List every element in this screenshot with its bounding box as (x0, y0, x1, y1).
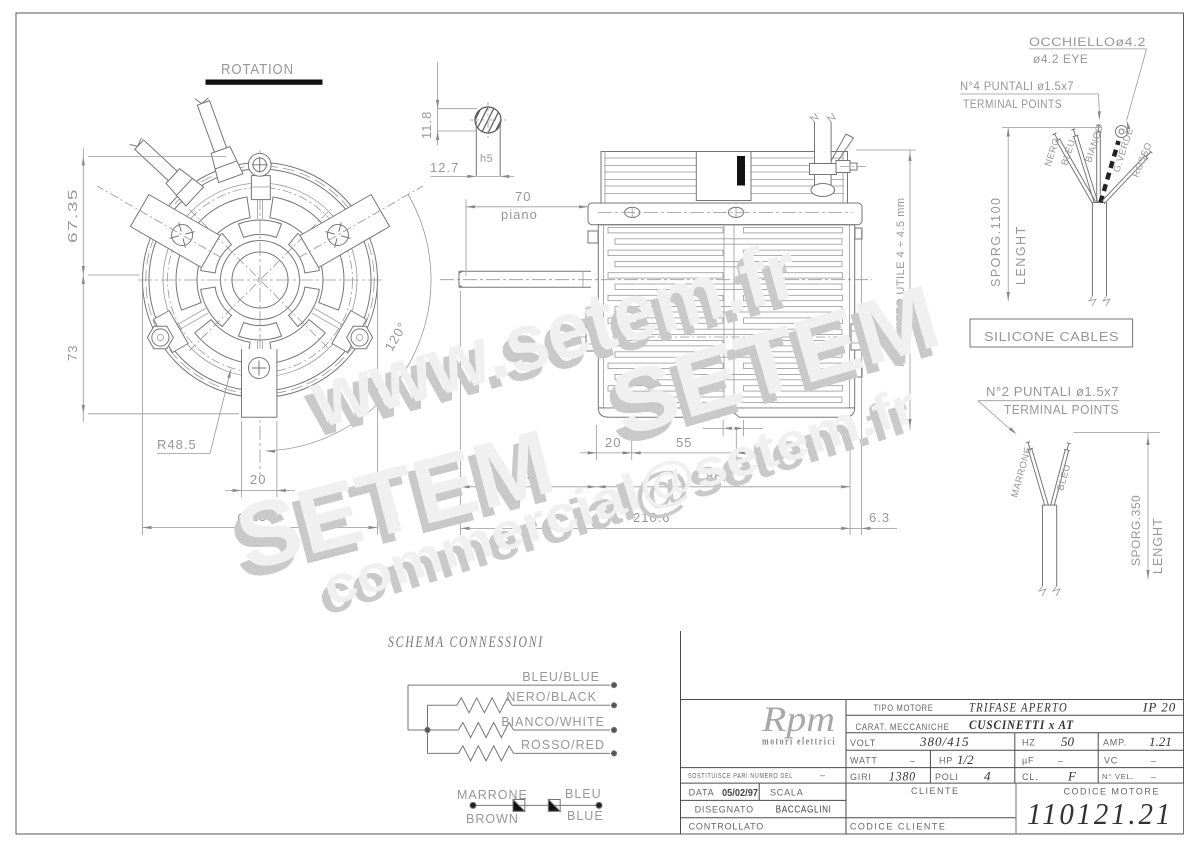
svg-text:SOSTITUISCE PARI NUMERO DEL: SOSTITUISCE PARI NUMERO DEL (688, 771, 793, 780)
svg-text:LENGHT: LENGHT (1014, 225, 1028, 285)
svg-text:VC: VC (1104, 756, 1118, 766)
svg-text:1380: 1380 (889, 769, 916, 784)
svg-text:–: – (1058, 756, 1064, 766)
svg-text:IP 20: IP 20 (1142, 700, 1176, 715)
svg-text:–: – (1151, 772, 1157, 782)
svg-text:LENGHT: LENGHT (1151, 517, 1165, 574)
svg-text:1/2: 1/2 (957, 752, 974, 767)
svg-text:NERO/BLACK: NERO/BLACK (506, 690, 597, 704)
svg-text:BROWN: BROWN (466, 812, 519, 826)
svg-text:HZ: HZ (1022, 738, 1036, 748)
svg-text:h5: h5 (480, 153, 493, 165)
svg-text:–: – (1151, 756, 1157, 766)
svg-text:TERMINAL POINTS: TERMINAL POINTS (1004, 403, 1119, 417)
svg-text:380/415: 380/415 (919, 734, 970, 749)
svg-text:MARRONE: MARRONE (457, 788, 528, 802)
svg-text:GIRI: GIRI (850, 772, 872, 782)
svg-text:F: F (1067, 769, 1077, 784)
svg-text:73: 73 (65, 345, 80, 361)
svg-text:AMP.: AMP. (1103, 738, 1127, 748)
svg-text:SCHEMA CONNESSIONI: SCHEMA CONNESSIONI (388, 634, 544, 651)
svg-text:BLEU: BLEU (565, 787, 602, 801)
svg-text:WATT: WATT (850, 756, 878, 766)
svg-text:SILICONE CABLES: SILICONE CABLES (984, 330, 1119, 344)
svg-text:SPORG.1100: SPORG.1100 (989, 196, 1003, 287)
svg-text:CLIENTE: CLIENTE (911, 786, 960, 796)
svg-text:ROSSO/RED: ROSSO/RED (521, 738, 605, 752)
svg-text:N°4 PUNTALI ø1.5x7: N°4 PUNTALI ø1.5x7 (960, 79, 1074, 93)
svg-text:TRIFASE APERTO: TRIFASE APERTO (969, 700, 1068, 715)
svg-text:110121.21: 110121.21 (1027, 796, 1173, 831)
svg-text:BACCAGLINI: BACCAGLINI (776, 805, 832, 816)
svg-text:05/02/97: 05/02/97 (722, 788, 758, 799)
svg-text:Rpm: Rpm (761, 699, 835, 739)
svg-text:BIANCO/WHITE: BIANCO/WHITE (501, 715, 605, 729)
svg-text:SPORG.350: SPORG.350 (1129, 495, 1143, 566)
svg-text:VOLT: VOLT (850, 738, 876, 748)
svg-text:CARAT. MECCANICHE: CARAT. MECCANICHE (856, 722, 950, 732)
svg-text:BLEU/BLUE: BLEU/BLUE (522, 670, 600, 684)
svg-text:DATA: DATA (689, 788, 715, 798)
svg-text:CONTROLLATO: CONTROLLATO (689, 822, 764, 832)
svg-text:70: 70 (515, 189, 531, 204)
svg-text:N°2 PUNTALI ø1.5x7: N°2 PUNTALI ø1.5x7 (986, 385, 1119, 399)
svg-text:CODICE MOTORE: CODICE MOTORE (1064, 787, 1160, 797)
svg-text:POLI: POLI (935, 772, 959, 782)
svg-text:TIPO MOTORE: TIPO MOTORE (874, 703, 934, 713)
svg-text:CODICE CLIENTE: CODICE CLIENTE (850, 822, 947, 832)
svg-text:ø4.2 EYE: ø4.2 EYE (1033, 52, 1088, 66)
svg-text:ROTATION: ROTATION (221, 62, 294, 78)
svg-text:CUSCINETTI x AT: CUSCINETTI x AT (969, 717, 1074, 732)
svg-text:11.8: 11.8 (419, 111, 434, 139)
svg-text:50: 50 (1061, 734, 1075, 749)
svg-text:BLUE: BLUE (567, 809, 604, 823)
svg-text:4: 4 (984, 769, 991, 784)
svg-text:OCCHIELLOø4.2: OCCHIELLOø4.2 (1029, 35, 1146, 49)
svg-text:–: – (820, 770, 826, 780)
svg-text:HP: HP (939, 756, 953, 766)
svg-text:piano: piano (501, 207, 538, 222)
svg-text:TERMINAL POINTS: TERMINAL POINTS (963, 97, 1062, 111)
svg-text:–: – (910, 756, 916, 766)
svg-text:µF: µF (1022, 756, 1034, 766)
svg-text:N° VEL.: N° VEL. (1102, 772, 1134, 781)
svg-text:DISEGNATO: DISEGNATO (695, 805, 754, 815)
svg-text:1.21: 1.21 (1149, 734, 1172, 749)
svg-text:R48.5: R48.5 (157, 437, 197, 452)
svg-text:67.35: 67.35 (65, 188, 80, 243)
svg-text:CL.: CL. (1022, 772, 1038, 782)
svg-text:SCALA: SCALA (770, 788, 804, 798)
svg-text:motori elettrici: motori elettrici (762, 737, 836, 748)
svg-text:6.3: 6.3 (869, 510, 890, 525)
svg-text:12.7: 12.7 (430, 160, 459, 175)
